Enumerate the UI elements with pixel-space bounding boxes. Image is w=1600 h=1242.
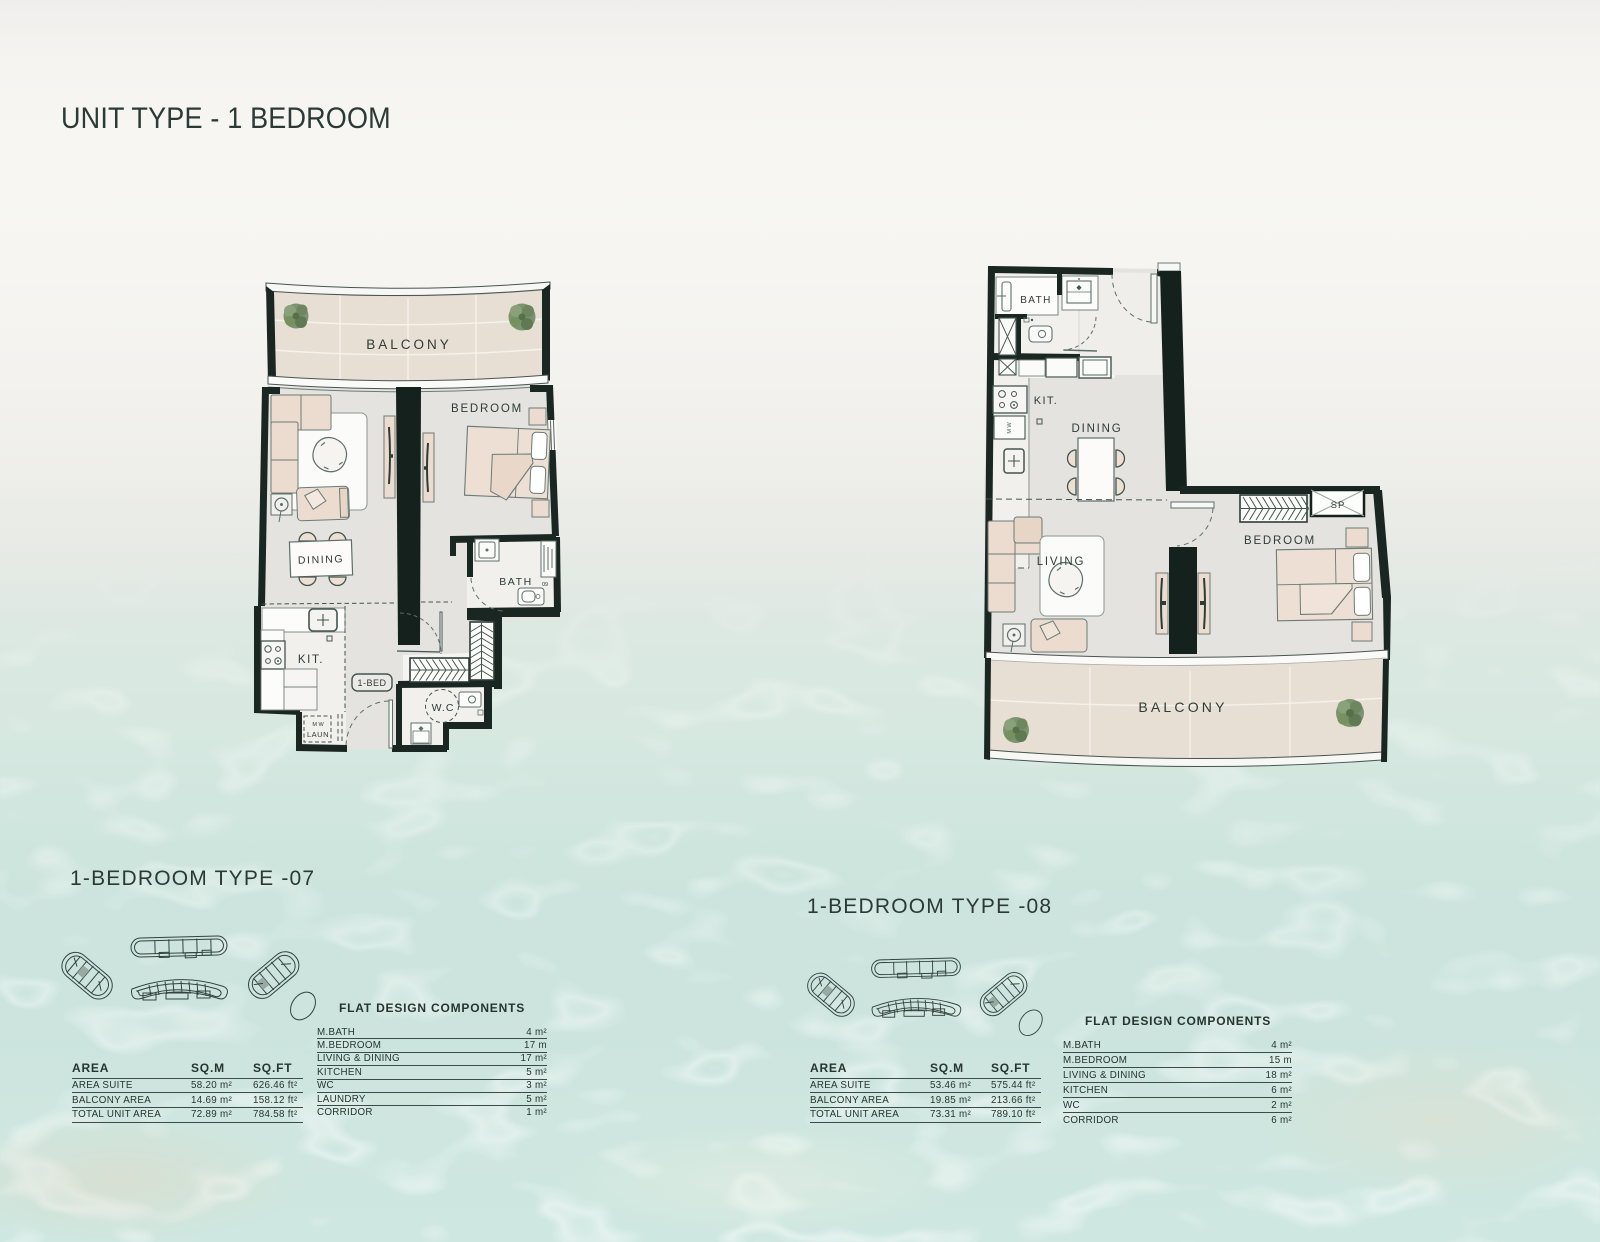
svg-text:BEDROOM: BEDROOM: [1244, 535, 1316, 547]
svg-text:LAUN: LAUN: [307, 730, 329, 739]
svg-text:SP: SP: [1331, 500, 1346, 511]
svg-text:BEDROOM: BEDROOM: [451, 403, 523, 415]
svg-text:BALCONY: BALCONY: [366, 337, 452, 352]
svg-text:W.C: W.C: [432, 702, 455, 714]
svg-text:M W: M W: [312, 722, 324, 728]
svg-text:1-BED: 1-BED: [357, 678, 386, 688]
svg-text:M W: M W: [1007, 422, 1013, 434]
svg-text:DINING: DINING: [1071, 423, 1122, 435]
svg-text:BALCONY: BALCONY: [1138, 699, 1227, 715]
svg-text:BATH: BATH: [499, 576, 533, 588]
svg-text:DINING: DINING: [298, 553, 345, 567]
svg-text:KIT.: KIT.: [298, 654, 324, 666]
svg-text:BATH: BATH: [1020, 295, 1052, 306]
svg-text:09: 09: [542, 582, 548, 588]
svg-text:KIT.: KIT.: [1034, 395, 1059, 407]
svg-text:LIVING: LIVING: [1037, 556, 1086, 568]
